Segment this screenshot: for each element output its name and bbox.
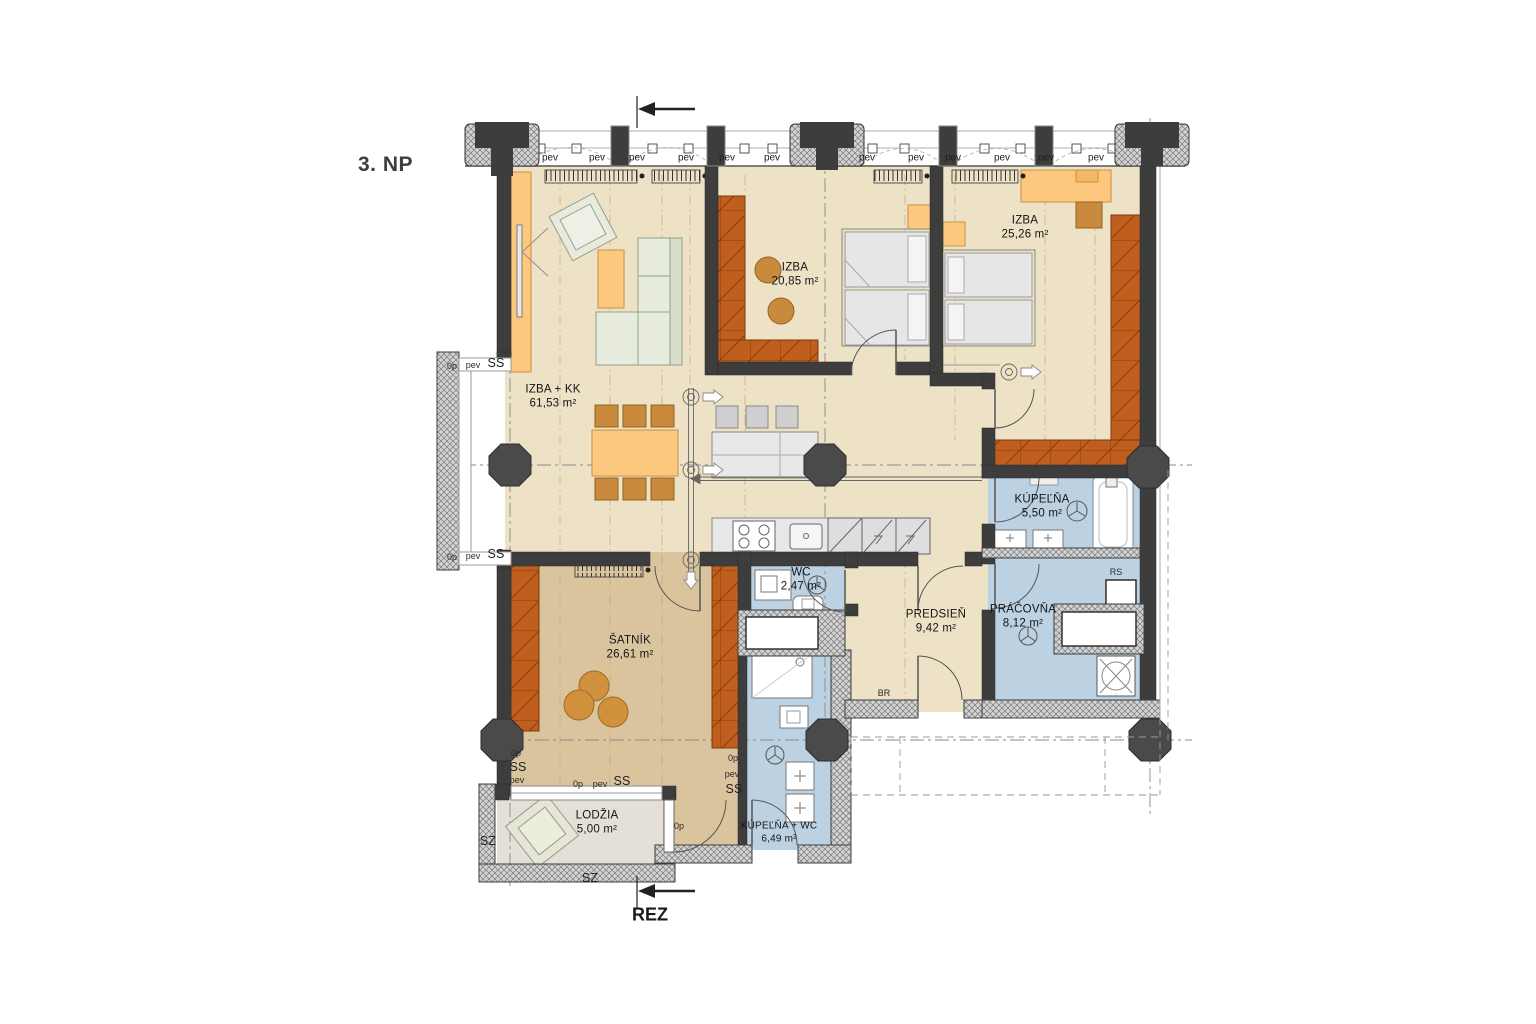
br-tag: BR (878, 688, 891, 698)
nightstand (908, 205, 932, 229)
room-label-izba-1: IZBA20,85 m² (772, 261, 819, 290)
window-label-pev: pev (542, 153, 558, 164)
section-label: REZ (632, 905, 668, 926)
plan-title: 3. NP (358, 153, 413, 177)
window-label-pev: pev (678, 153, 694, 164)
pouf (768, 298, 794, 324)
window-label-ss: SS (487, 547, 504, 561)
window-label-pev: pev (1088, 153, 1104, 164)
window-label-0p: 0p (447, 552, 457, 562)
window-label-pev: pev (725, 769, 740, 779)
pouf (564, 690, 594, 720)
niche (746, 617, 818, 649)
floor-plan-page: 3. NP IZBA + KK61,53 m² IZBA20,85 m² IZB… (0, 0, 1536, 1024)
window-label-ss: SS (725, 782, 742, 796)
pillow (908, 294, 926, 340)
pillow (908, 236, 926, 282)
wardrobe (712, 563, 740, 748)
window-label-0p: 0p (674, 821, 684, 831)
window-label-pev: pev (466, 551, 481, 561)
window-label-ss: SS (487, 356, 504, 370)
room-label-kupelna-wc: KÚPEĽŇA + WC6,49 m² (741, 821, 818, 846)
tv (517, 225, 522, 317)
window-label-pev: pev (764, 153, 780, 164)
niche (1062, 612, 1136, 646)
wardrobe (1111, 215, 1141, 440)
compass-sz-bottom: SZ (582, 871, 598, 885)
toilet (780, 706, 808, 728)
rs-box (1106, 580, 1136, 606)
room-label-predsien: PREDSIEŇ9,42 m² (906, 608, 966, 637)
window-label-0p: 0p (447, 361, 457, 371)
kitchen-counter (712, 518, 930, 554)
wardrobe (988, 440, 1140, 466)
nightstand (943, 222, 965, 246)
room-label-satnik: ŠATNÍK26,61 m² (607, 634, 654, 663)
window-label-0p: 0p (728, 753, 738, 763)
desk-chair (1076, 202, 1102, 228)
coffee-table (598, 250, 624, 308)
room-label-lodzia: LODŽIA5,00 m² (576, 809, 619, 838)
room-label-izba-kk: IZBA + KK61,53 m² (525, 383, 580, 412)
window-label-pev: pev (1038, 153, 1054, 164)
window-label-ss: SS (613, 774, 630, 788)
rs-tag: RS (1110, 567, 1123, 577)
window-label-pev: pev (593, 779, 608, 789)
window-label-pev: pev (994, 153, 1010, 164)
window-label-pev: pev (908, 153, 924, 164)
wardrobe (511, 563, 539, 731)
tap (1106, 477, 1117, 487)
room-label-izba-2: IZBA25,26 m² (1002, 214, 1049, 243)
window-label-pev: pev (719, 153, 735, 164)
compass-sz-left: SZ (480, 834, 496, 848)
window-label-ss: SS (509, 760, 526, 774)
room-label-pracovna: PRÁČOVŇA8,12 m² (990, 603, 1056, 632)
window-label-pev: pev (589, 153, 605, 164)
kitchen-sink (790, 524, 822, 549)
window-label-pev: pev (510, 775, 525, 785)
door-leaf (664, 800, 674, 852)
room-label-wc: WC2,47 m² (781, 566, 821, 595)
window-label-pev: pev (466, 360, 481, 370)
window-label-pev: pev (945, 153, 961, 164)
pouf (598, 697, 628, 727)
window-label-pev: pev (859, 153, 875, 164)
window-label-0p: 0p (573, 779, 583, 789)
dining-set (592, 405, 678, 500)
cooktop (733, 521, 775, 551)
window-label-pev: pev (629, 153, 645, 164)
room-label-kupelna: KÚPEĽŇA5,50 m² (1014, 493, 1069, 522)
pillow (948, 257, 964, 293)
window-label-0p: 0p (511, 748, 521, 758)
pillow (948, 304, 964, 340)
